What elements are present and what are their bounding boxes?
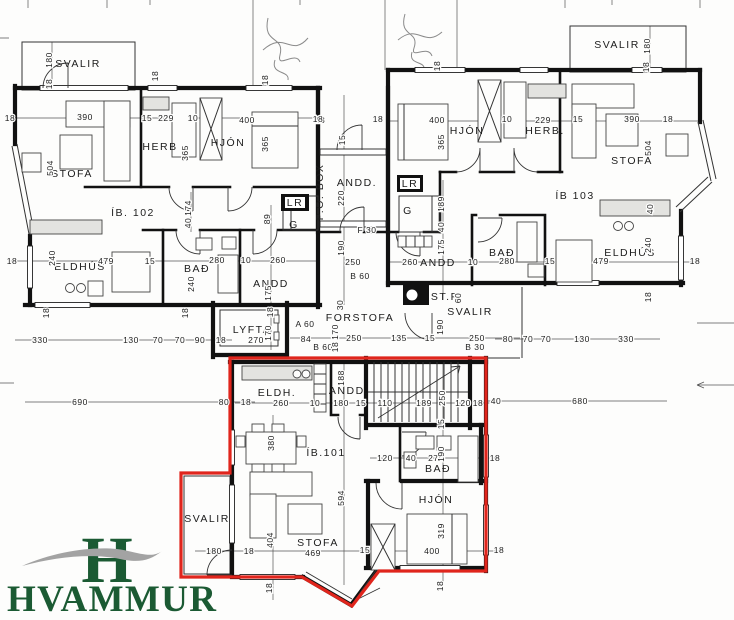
dimension-label: 15 bbox=[436, 419, 446, 429]
dimension-label: 10 bbox=[241, 255, 251, 265]
dimension-label: 110 bbox=[377, 398, 392, 408]
dimension-label: 130 bbox=[574, 334, 590, 344]
dimension-label: 180 bbox=[333, 398, 349, 408]
dimension-label: 690 bbox=[72, 397, 88, 407]
dimension-label: 400 bbox=[424, 546, 440, 556]
dimension-label: 15 bbox=[145, 256, 155, 266]
floor-plan-canvas: SVALIRSTOFAHERBHJÓNÍB. 102ELDHÚSBAÐANDDL… bbox=[0, 0, 734, 620]
dimension-label: 479 bbox=[593, 256, 609, 266]
dimension-label: 18 bbox=[260, 75, 270, 85]
dimension-label: 40 bbox=[491, 396, 501, 406]
dimension-label: 70 bbox=[523, 334, 533, 344]
dimension-label: 220 bbox=[336, 190, 346, 206]
dimension-label: 18 bbox=[150, 71, 160, 81]
dimension-label: 174 bbox=[183, 200, 193, 216]
dimension-label: 170 bbox=[263, 325, 273, 341]
dimension-label: 170 bbox=[330, 324, 340, 340]
dimension-label: 120 bbox=[455, 398, 471, 408]
dimension-label: 330 bbox=[618, 334, 634, 344]
dimension-label: 330 bbox=[32, 335, 48, 345]
dimension-label: 180 bbox=[44, 52, 54, 68]
room-label: HJÓN bbox=[419, 493, 454, 506]
room-label: SVALIR bbox=[55, 58, 101, 70]
room-label: ANDD bbox=[420, 257, 456, 269]
dimension-label: 18 bbox=[373, 114, 383, 124]
dimension-label: 135 bbox=[391, 333, 407, 343]
dimension-label: 240 bbox=[643, 237, 653, 253]
dimension-label: 30 bbox=[335, 300, 345, 310]
dimension-label: 260 bbox=[270, 255, 286, 265]
dimension-label: 190 bbox=[336, 240, 346, 256]
room-label: ÍB 103 bbox=[555, 189, 594, 202]
floor-plan-page: SVALIRSTOFAHERBHJÓNÍB. 102ELDHÚSBAÐANDDL… bbox=[0, 0, 734, 620]
dimension-label: 280 bbox=[209, 255, 225, 265]
dimension-label: 70 bbox=[541, 334, 551, 344]
dimension-label: 680 bbox=[572, 396, 588, 406]
room-label: G bbox=[289, 219, 299, 231]
room-label: HJÓN bbox=[450, 124, 485, 137]
dimension-label: 15 bbox=[337, 135, 347, 145]
room-label: SVALIR bbox=[594, 39, 640, 51]
dimension-label: 260 bbox=[273, 398, 289, 408]
dimension-label: 15 bbox=[142, 113, 152, 123]
dimension-label: 189 bbox=[436, 196, 446, 212]
dimension-label: 380 bbox=[266, 435, 276, 451]
dimension-label: 18 bbox=[180, 308, 190, 318]
dimension-label: 504 bbox=[45, 160, 55, 176]
dimension-label: 250 bbox=[437, 390, 447, 406]
dimension-label: 18 bbox=[265, 307, 275, 317]
dimension-label: 189 bbox=[416, 398, 432, 408]
dimension-label: 18 bbox=[241, 397, 251, 407]
dimension-label: 400 bbox=[429, 115, 445, 125]
dimension-label: 18 bbox=[641, 62, 651, 72]
dimension-label: 84 bbox=[301, 334, 311, 344]
dimension-label: 15 bbox=[545, 256, 555, 266]
dimension-label: 250 bbox=[345, 257, 361, 267]
dimension-label: 18 bbox=[313, 114, 323, 124]
dimension-label: 18 bbox=[216, 335, 226, 345]
room-label: ANDD. bbox=[337, 177, 377, 189]
standpipe-stp bbox=[403, 285, 429, 305]
room-label: P.O. BOX bbox=[314, 164, 326, 221]
room-label: HJÓN bbox=[211, 136, 246, 149]
room-label: LR bbox=[402, 178, 418, 190]
room-label: BAÐ bbox=[425, 463, 451, 475]
dimension-label: 10 bbox=[188, 113, 198, 123]
dimension-label: 365 bbox=[436, 134, 446, 150]
dimension-label: 15 bbox=[360, 545, 370, 555]
dimension-label: 15 bbox=[425, 333, 435, 343]
dimension-label: B 30 bbox=[465, 342, 485, 352]
dimension-label: 469 bbox=[305, 548, 321, 558]
dimension-label: 390 bbox=[624, 114, 640, 124]
dimension-label: 18 bbox=[490, 453, 500, 463]
dimension-label: 15 bbox=[356, 398, 366, 408]
dimension-label: 18 bbox=[432, 61, 442, 71]
logo-wordmark: HVAMMUR bbox=[7, 579, 217, 620]
dimension-label: 80 bbox=[503, 334, 513, 344]
dimension-label: 240 bbox=[47, 250, 57, 266]
dimension-label: 404 bbox=[265, 532, 275, 548]
dimension-label: 10 bbox=[468, 257, 478, 267]
dimension-label: 400 bbox=[239, 115, 255, 125]
dimension-label: 240 bbox=[186, 276, 196, 292]
dimension-label: 18 bbox=[643, 292, 653, 302]
dimension-label: 18 bbox=[44, 79, 54, 89]
dimension-label: 40 bbox=[645, 204, 655, 214]
dimension-label: 390 bbox=[77, 112, 93, 122]
dimension-label: 18 bbox=[41, 308, 51, 318]
room-label: FORSTOFA bbox=[326, 312, 394, 324]
room-label: BAÐ bbox=[184, 263, 210, 275]
dimension-label: 504 bbox=[643, 140, 653, 156]
dimension-label: 18 bbox=[473, 398, 483, 408]
dimension-label: 89 bbox=[262, 214, 272, 224]
dimension-label: 229 bbox=[158, 113, 174, 123]
room-label: ANDD. bbox=[329, 385, 369, 397]
stairwell bbox=[368, 362, 468, 422]
dimension-label: 18 bbox=[494, 545, 504, 555]
room-label: ÍB.101 bbox=[306, 446, 345, 459]
dimension-label: 90 bbox=[195, 335, 205, 345]
dimension-label: 250 bbox=[346, 333, 362, 343]
dimension-label: 18 bbox=[690, 256, 700, 266]
dimension-label: 260 bbox=[402, 257, 418, 267]
dimension-label: 10 bbox=[502, 114, 512, 124]
dimension-label: 180 bbox=[642, 38, 652, 54]
dimension-label: B 60 bbox=[350, 271, 370, 281]
dimension-label: 270 bbox=[248, 335, 264, 345]
room-label: SVALIR bbox=[184, 513, 230, 525]
dimension-label: 130 bbox=[123, 335, 139, 345]
hvammur-logo: H HVAMMUR bbox=[7, 524, 217, 620]
room-label: STOFA bbox=[51, 168, 93, 180]
dimension-label: 120 bbox=[377, 453, 393, 463]
dimension-label: 18 bbox=[264, 583, 274, 593]
dimension-label: 18 bbox=[330, 342, 340, 352]
dimension-label: 18 bbox=[5, 113, 15, 123]
dimension-label: 280 bbox=[499, 256, 515, 266]
dimension-label: 594 bbox=[336, 490, 346, 506]
dimension-label: 15 bbox=[573, 114, 583, 124]
dimension-label: 188 bbox=[336, 370, 346, 386]
room-label: ÍB. 102 bbox=[111, 206, 155, 219]
room-label: G bbox=[403, 205, 413, 217]
dimension-label: 60 bbox=[453, 293, 463, 303]
room-label: LR bbox=[287, 197, 303, 209]
dimension-label: 18 bbox=[7, 256, 17, 266]
dimension-label: 80 bbox=[219, 397, 229, 407]
dimension-label: 190 bbox=[436, 446, 446, 462]
dimension-label: 70 bbox=[153, 335, 163, 345]
dimension-label: 40 bbox=[436, 222, 446, 232]
dimension-label: 70 bbox=[175, 335, 185, 345]
dimension-label: A 60 bbox=[295, 319, 314, 329]
dimension-label: 229 bbox=[535, 115, 551, 125]
room-label: HERB bbox=[142, 141, 177, 153]
dimension-label: 180 bbox=[206, 546, 222, 556]
dimension-label: 18 bbox=[663, 114, 673, 124]
dimension-label: 175 bbox=[436, 239, 446, 255]
dimension-label: 18 bbox=[244, 546, 254, 556]
dimension-label: 365 bbox=[260, 136, 270, 152]
dimension-label: 365 bbox=[180, 145, 190, 161]
dimension-label: 479 bbox=[98, 256, 114, 266]
dimension-label: 40 bbox=[406, 453, 416, 463]
dimension-label: F 30 bbox=[357, 225, 376, 235]
room-label: SVALIR bbox=[447, 306, 493, 318]
dimension-label: 10 bbox=[310, 398, 320, 408]
dimension-label: 175 bbox=[263, 285, 273, 301]
dimension-label: 319 bbox=[436, 523, 446, 539]
dimension-label: 190 bbox=[435, 319, 445, 335]
dimension-label: 40 bbox=[183, 218, 193, 228]
room-label: HERB. bbox=[525, 125, 565, 137]
dimension-label: 18 bbox=[435, 581, 445, 591]
